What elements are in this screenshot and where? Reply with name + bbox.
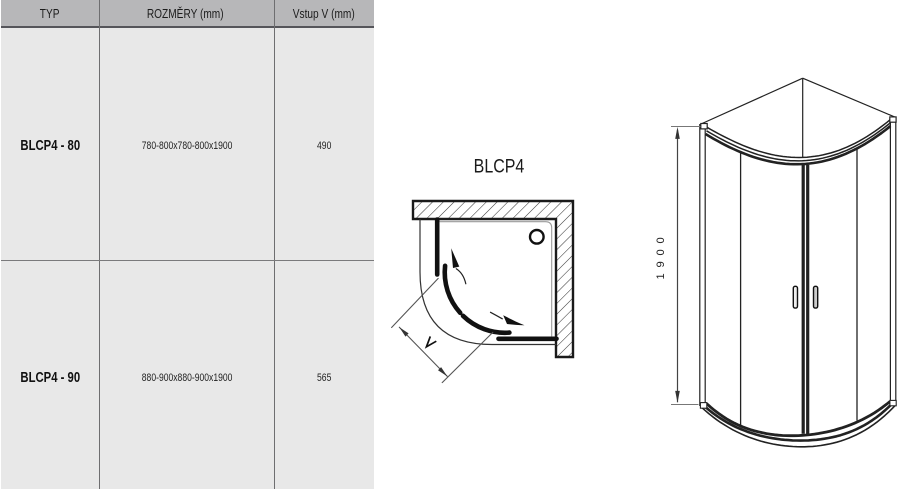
svg-text:1900: 1900	[655, 231, 667, 279]
svg-text:BLCP4: BLCP4	[474, 155, 525, 177]
